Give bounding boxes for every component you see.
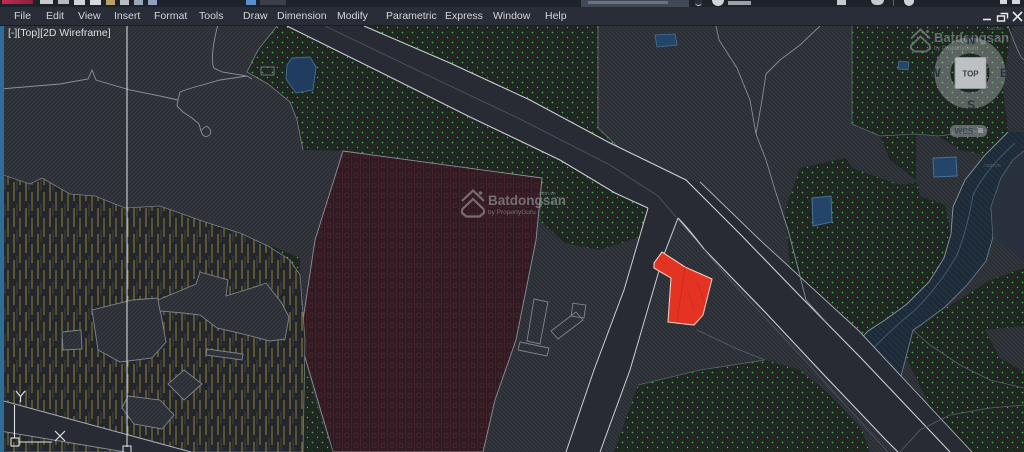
svg-text:TOP: TOP: [962, 70, 979, 79]
svg-text:.com.vn: .com.vn: [987, 26, 1003, 31]
svg-text:E: E: [1000, 66, 1008, 80]
svg-text:W: W: [929, 66, 941, 80]
svg-text:S: S: [967, 98, 975, 112]
svg-text:by PropertyGuru: by PropertyGuru: [488, 209, 536, 216]
svg-text:.com.vn: .com.vn: [538, 191, 556, 197]
svg-text:.com.vn: .com.vn: [983, 163, 1001, 169]
svg-text:WCS: WCS: [955, 127, 974, 136]
svg-text:N: N: [967, 33, 976, 47]
